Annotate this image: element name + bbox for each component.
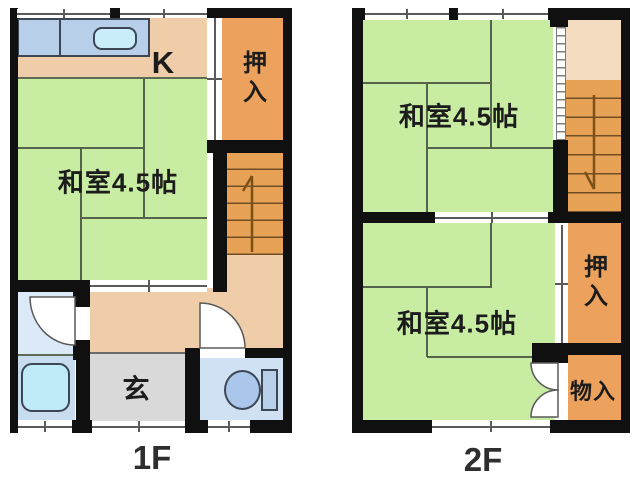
closet-label-2f: 押入: [576, 254, 611, 312]
hallway-under-stairs: [227, 255, 283, 288]
wall: [10, 280, 90, 292]
closet-label-1f: 押入: [235, 50, 270, 108]
stairs-2f: [566, 80, 621, 212]
wall: [213, 153, 227, 292]
closet-sliding-door-2f: [555, 225, 568, 343]
wall: [207, 8, 292, 18]
kitchen-label: K: [152, 45, 174, 81]
stair-landing-2f: [566, 20, 621, 80]
counter-divider: [59, 20, 61, 55]
bathtub: [21, 363, 70, 412]
wall: [352, 420, 432, 433]
wall: [548, 8, 630, 20]
window: [120, 9, 207, 18]
wall: [352, 8, 365, 20]
wall: [250, 420, 292, 433]
room-sliding-door-1f: [90, 280, 207, 292]
toilet-bowl: [224, 370, 261, 410]
room-sliding-door-2f: [435, 212, 548, 223]
wall: [449, 8, 458, 20]
wall: [10, 8, 17, 18]
kitchen-room-divider: [17, 77, 207, 79]
window: [432, 421, 550, 432]
tatami-line: [81, 217, 207, 219]
wall: [555, 343, 630, 355]
hallway-1f: [90, 288, 200, 352]
window: [458, 9, 548, 19]
wall: [110, 8, 120, 18]
floor-label-1f: 1F: [133, 439, 172, 477]
wall: [207, 140, 283, 153]
wall: [185, 420, 208, 433]
closet-sliding-door-1f: [207, 18, 222, 140]
window: [17, 9, 110, 18]
wall: [76, 356, 90, 420]
wall: [73, 292, 90, 307]
entrance-door: [92, 421, 185, 432]
tatami-line: [427, 147, 553, 149]
tatami-room-label-2f-top: 和室4.5帖: [399, 97, 519, 134]
wall: [352, 212, 435, 223]
stair-railing-2f: [556, 27, 566, 140]
hallway-1f-east: [200, 288, 283, 348]
entrance-label: 玄: [123, 368, 150, 407]
wall: [550, 20, 568, 27]
wall: [72, 420, 92, 433]
stairs-1f: [227, 153, 283, 255]
wall: [10, 8, 18, 433]
wall: [548, 212, 630, 223]
window: [365, 9, 449, 19]
window: [18, 421, 72, 432]
toilet-tank: [261, 369, 278, 411]
tatami-room-label-2f-bottom: 和室4.5帖: [397, 304, 517, 341]
washroom-bath-divider: [18, 354, 75, 356]
kitchen-sink: [93, 27, 137, 50]
floorplan-canvas: K 和室4.5帖 押入 玄 1F 和室4.5帖 和室4.5帖 押入 物入 2F: [0, 0, 640, 480]
tatami-line: [490, 223, 492, 288]
wall: [283, 8, 292, 433]
wall: [550, 420, 630, 433]
tatami-room-label-1f: 和室4.5帖: [58, 163, 178, 200]
storage-label-2f: 物入: [570, 374, 616, 406]
window: [208, 421, 250, 432]
wall: [10, 420, 18, 433]
wall: [553, 140, 568, 212]
wall: [185, 348, 200, 420]
wall: [245, 348, 283, 358]
washroom: [18, 292, 75, 354]
floor-label-2f: 2F: [464, 441, 503, 479]
